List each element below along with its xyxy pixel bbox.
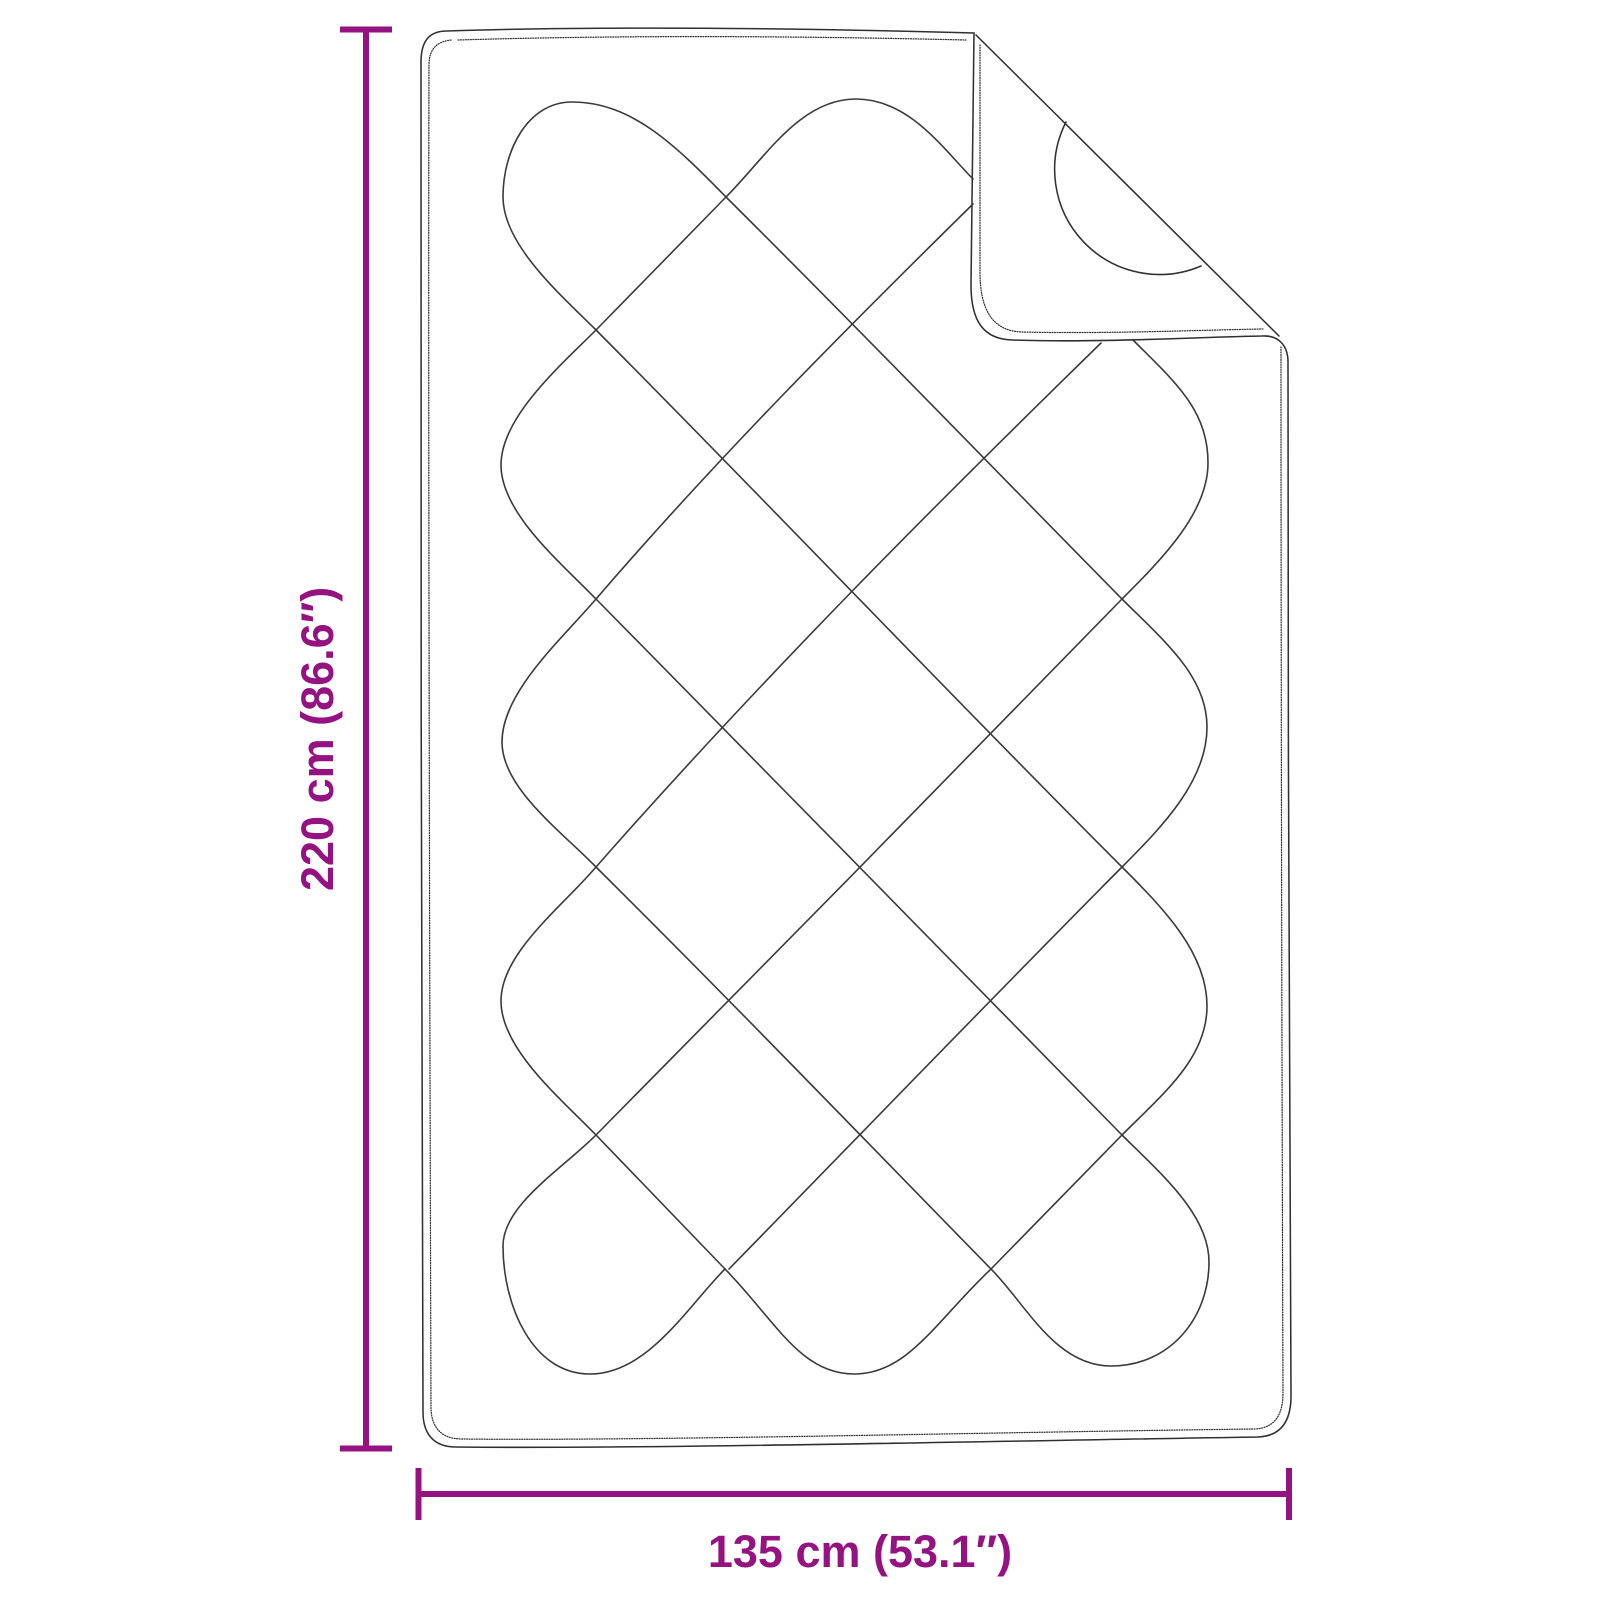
svg-text:135 cm (53.1″): 135 cm (53.1″) [708,1526,1012,1577]
svg-text:220 cm (86.6″): 220 cm (86.6″) [292,587,343,891]
